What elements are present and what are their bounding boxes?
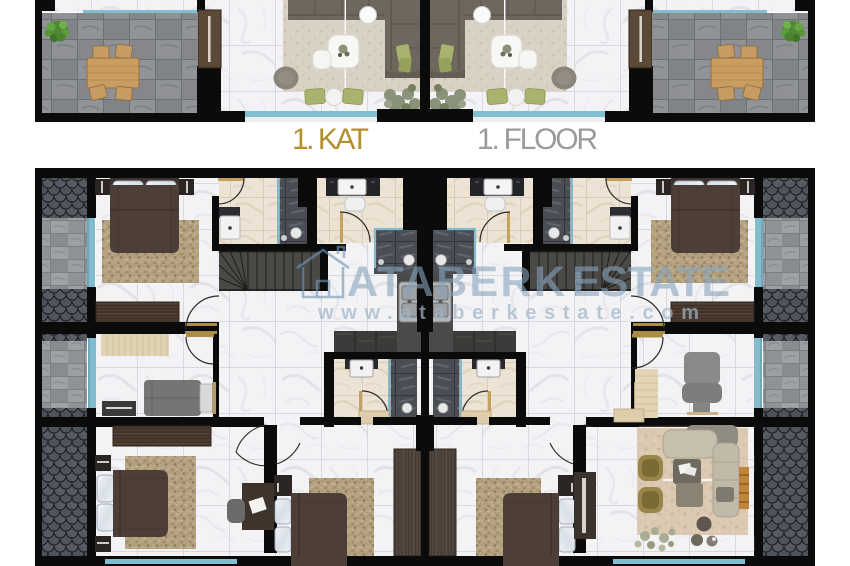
svg-text:www.ataberkestate.com: www.ataberkestate.com [317, 302, 699, 324]
svg-text:ESTATE: ESTATE [572, 258, 730, 306]
svg-text:1. KAT: 1. KAT [292, 123, 369, 156]
svg-text:1. FLOOR: 1. FLOOR [477, 123, 598, 156]
